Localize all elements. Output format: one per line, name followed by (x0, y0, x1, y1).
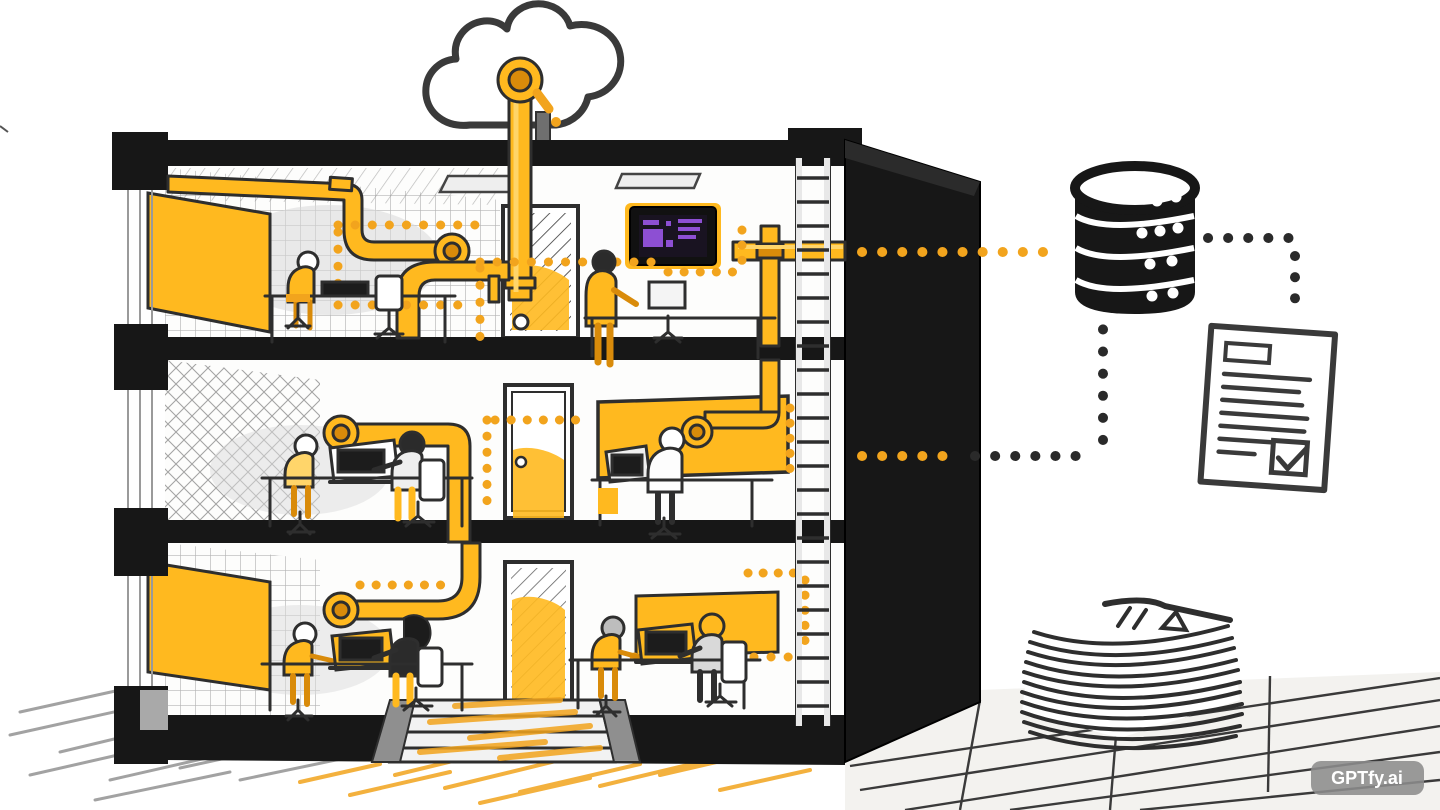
slab-floor3 (162, 337, 845, 360)
stray-mark (0, 126, 8, 132)
watermark-label: GPTfy.ai (1331, 768, 1403, 788)
laptop (606, 446, 650, 482)
wall-display-icon (625, 203, 721, 269)
window-panel-bottom (148, 562, 270, 690)
slab-floor2 (162, 520, 845, 543)
window-panel-top (148, 193, 270, 332)
watermark-badge[interactable]: GPTfy.ai (1311, 761, 1424, 795)
door-bottom-floor (505, 562, 572, 717)
laptop (322, 282, 368, 296)
database-icon (1075, 166, 1195, 314)
building (112, 128, 980, 765)
check-icon (1271, 440, 1307, 474)
illustration-root: GPTfy.ai (0, 0, 1440, 810)
roof-slab (113, 140, 845, 166)
illustration-canvas: GPTfy.ai (0, 0, 1440, 810)
side-wall (845, 140, 980, 762)
door-middle-floor (505, 385, 572, 518)
dotted-flow-database-to-document (1208, 238, 1295, 318)
document-check-icon (1201, 326, 1336, 490)
desk-monitor (649, 282, 685, 308)
stairs (372, 700, 640, 762)
